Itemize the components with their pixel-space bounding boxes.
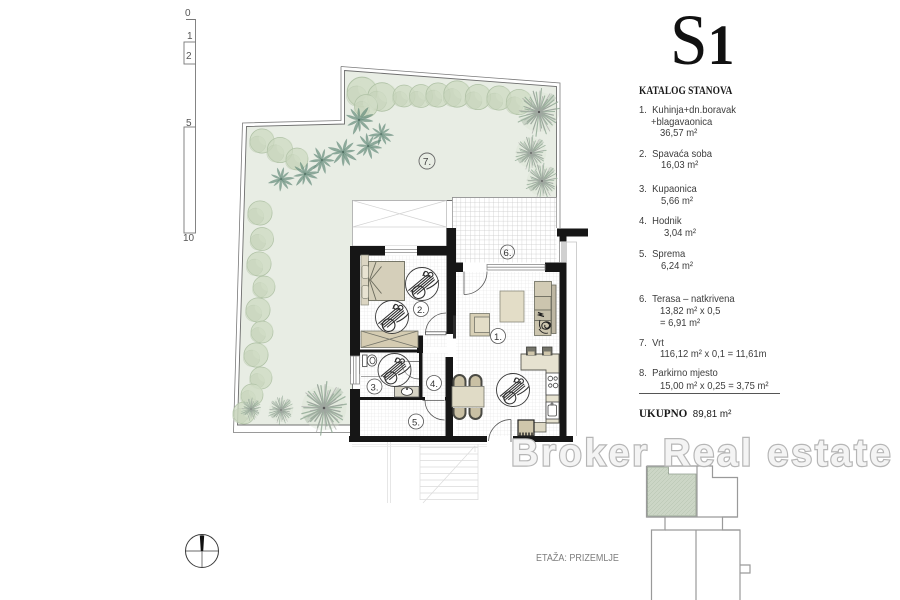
- svg-text:5: 5: [186, 118, 192, 129]
- svg-text:5.: 5.: [412, 418, 420, 429]
- svg-text:2.: 2.: [417, 305, 425, 316]
- svg-text:10: 10: [183, 233, 195, 244]
- svg-text:2: 2: [186, 51, 192, 62]
- svg-text:Broker Real estate: Broker Real estate: [511, 433, 893, 475]
- svg-text:3.: 3.: [371, 383, 379, 394]
- svg-text:1: 1: [187, 31, 193, 42]
- svg-text:1.: 1.: [494, 332, 502, 343]
- svg-text:6.: 6.: [504, 248, 512, 259]
- svg-text:0: 0: [185, 8, 191, 19]
- svg-text:7.: 7.: [423, 157, 431, 168]
- svg-text:4.: 4.: [430, 379, 438, 390]
